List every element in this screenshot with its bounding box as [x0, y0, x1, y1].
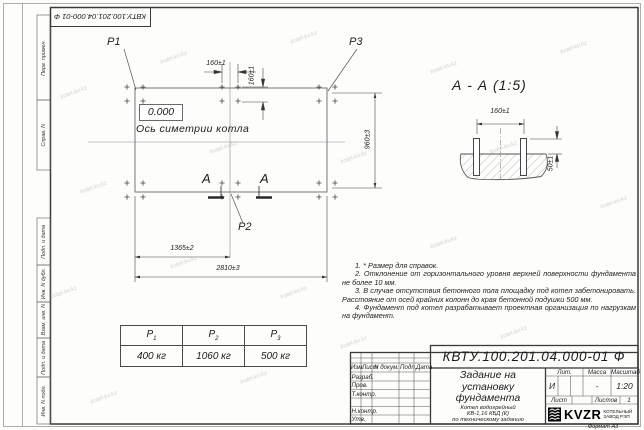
kvzr-logo-icon: [548, 407, 562, 422]
blueprint-page: { "watermark": { "text": "kotel-kv.kz" }…: [0, 0, 644, 430]
tb-col-ndokum: N докум.: [374, 364, 399, 371]
tb-sheet-label: Лист: [546, 397, 572, 404]
section-letter-right: А: [260, 171, 269, 186]
axis-of-symmetry-label: Ось симетрии котла: [136, 123, 249, 135]
note-4: 4. Фундамент под котел разрабатывает про…: [342, 304, 636, 321]
note-3: 3. В случае отсутствия бетонного пола пл…: [342, 287, 636, 304]
dim-text-160-right: 160±1: [249, 61, 256, 91]
side-label-inv-dubl: Инв. N дубл.: [37, 265, 50, 302]
load-table-header-row: P1 P2 P3: [121, 326, 307, 346]
load-table-header-p2: P2: [183, 326, 245, 346]
tb-col-data: Дата: [416, 364, 432, 371]
tb-title-line-3: фундамента: [432, 392, 544, 404]
tb-mass-label: Масса: [583, 369, 611, 376]
tb-row-prov: Пров.: [352, 382, 368, 389]
load-table-header-p3: P3: [245, 326, 307, 346]
load-table-value-row: 400 кг 1060 кг 500 кг: [121, 346, 307, 367]
section-letter-left: А: [202, 171, 211, 186]
dim-960: [332, 93, 382, 188]
dim-text-2810: 2810±3: [206, 265, 250, 272]
tb-subtitle-line-3: по техническому заданию: [432, 417, 544, 423]
tb-lit-value: И: [546, 381, 558, 391]
note-2: 2. Отклонение от горизонтального уровня …: [342, 270, 636, 287]
anchor-bolt-right: [521, 139, 527, 176]
anchor-bolt-left: [474, 139, 480, 176]
drawing-linework: [0, 0, 644, 430]
tb-title-line-2: установку: [432, 381, 544, 393]
load-value-p2: 1060 кг: [183, 346, 245, 367]
tb-row-utv: Утв.: [352, 416, 366, 423]
side-label-podp-data-1: Подп. и дата: [37, 218, 50, 265]
load-label-p1: P1: [107, 36, 120, 48]
tb-lit-label: Лит.: [546, 369, 583, 376]
load-table: P1 P2 P3 400 кг 1060 кг 500 кг: [120, 325, 307, 367]
elevation-mark: 0.000: [139, 104, 183, 121]
load-value-p1: 400 кг: [121, 346, 183, 367]
dim-text-1365: 1365±2: [160, 245, 204, 252]
dim-text-960: 960±3: [365, 125, 372, 155]
dim-text-160-top: 160±1: [196, 60, 236, 67]
side-label-inv-podl: Инв. N подл.: [37, 377, 50, 424]
plan-centerlines: [88, 62, 345, 258]
tb-row-tkontr: Т.контр.: [352, 391, 377, 398]
kvzr-logo: KVZR КОТЕЛЬНЫЙ ЗАВОД РЭП: [548, 405, 636, 423]
section-view-title: А - А (1:5): [452, 77, 527, 93]
side-label-vzam-inv: Взам. инв. N: [37, 302, 50, 338]
tb-row-razrab: Разраб.: [352, 374, 374, 381]
tb-mass-value: -: [583, 381, 611, 391]
side-label-perv-primen: Перв. примен.: [37, 15, 50, 100]
kvzr-logo-subtitle: КОТЕЛЬНЫЙ ЗАВОД РЭП: [603, 409, 632, 419]
load-label-p2: P2: [238, 221, 251, 233]
side-label-sprav-n: Справ. N: [37, 100, 50, 170]
load-table-header-p1: P1: [121, 326, 183, 346]
format-note: Формат А3: [575, 424, 631, 430]
tb-title-line-1: Задание на: [432, 369, 544, 381]
tb-sheets-label: Листов: [592, 397, 620, 404]
load-label-p3: P3: [349, 36, 362, 48]
dim-text-160-section: 160±1: [480, 108, 520, 115]
dim-1365: [135, 196, 230, 262]
side-label-podp-data-2: Подп. и дата: [37, 338, 50, 377]
tb-sheets-value: 1: [620, 397, 638, 404]
tb-col-podp: Подп.: [400, 364, 416, 371]
tb-scale-value: 1:20: [611, 381, 638, 391]
dim-text-50-section: 50±1: [548, 149, 555, 179]
load-value-p3: 500 кг: [245, 346, 307, 367]
technical-notes: 1. * Размер для справок. 2. Отклонение о…: [342, 262, 636, 321]
tb-scale-label: Масштаб: [611, 369, 638, 376]
section-concrete-pad: [460, 128, 547, 182]
top-doc-number: КВТУ.100.201.04.000-01 Ф: [50, 7, 150, 26]
tb-row-nkontr: Н.контр.: [352, 408, 378, 415]
kvzr-logo-text: KVZR: [564, 407, 601, 422]
doc-number: КВТУ.100.201.04.000-01 Ф: [432, 349, 636, 364]
